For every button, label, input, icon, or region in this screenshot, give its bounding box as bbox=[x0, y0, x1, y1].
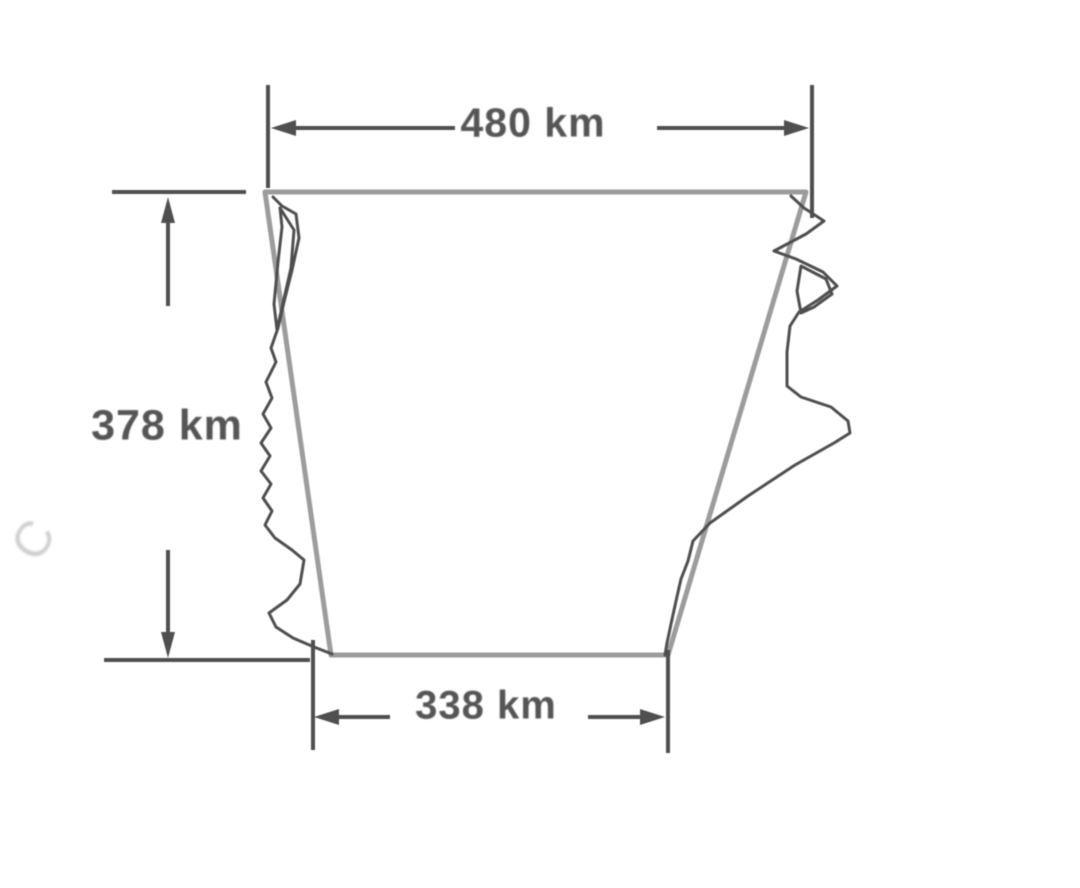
diagram-canvas: 480 km 378 km 338 km X C bbox=[0, 0, 1080, 888]
dimension-label-bottom: 338 km bbox=[415, 684, 557, 729]
right-irregular-border bbox=[665, 196, 850, 655]
arrowhead-right-icon bbox=[784, 120, 809, 136]
arrowhead-right-icon bbox=[640, 709, 665, 725]
arrowhead-left-icon bbox=[314, 709, 339, 725]
dimension-label-top: 480 km bbox=[460, 100, 605, 147]
dimension-label-left: 378 km bbox=[91, 402, 243, 451]
arrowhead-down-icon bbox=[161, 632, 175, 658]
arrowhead-left-icon bbox=[271, 120, 296, 136]
arrowhead-up-icon bbox=[161, 197, 175, 223]
trapezoid-outline bbox=[265, 192, 806, 655]
